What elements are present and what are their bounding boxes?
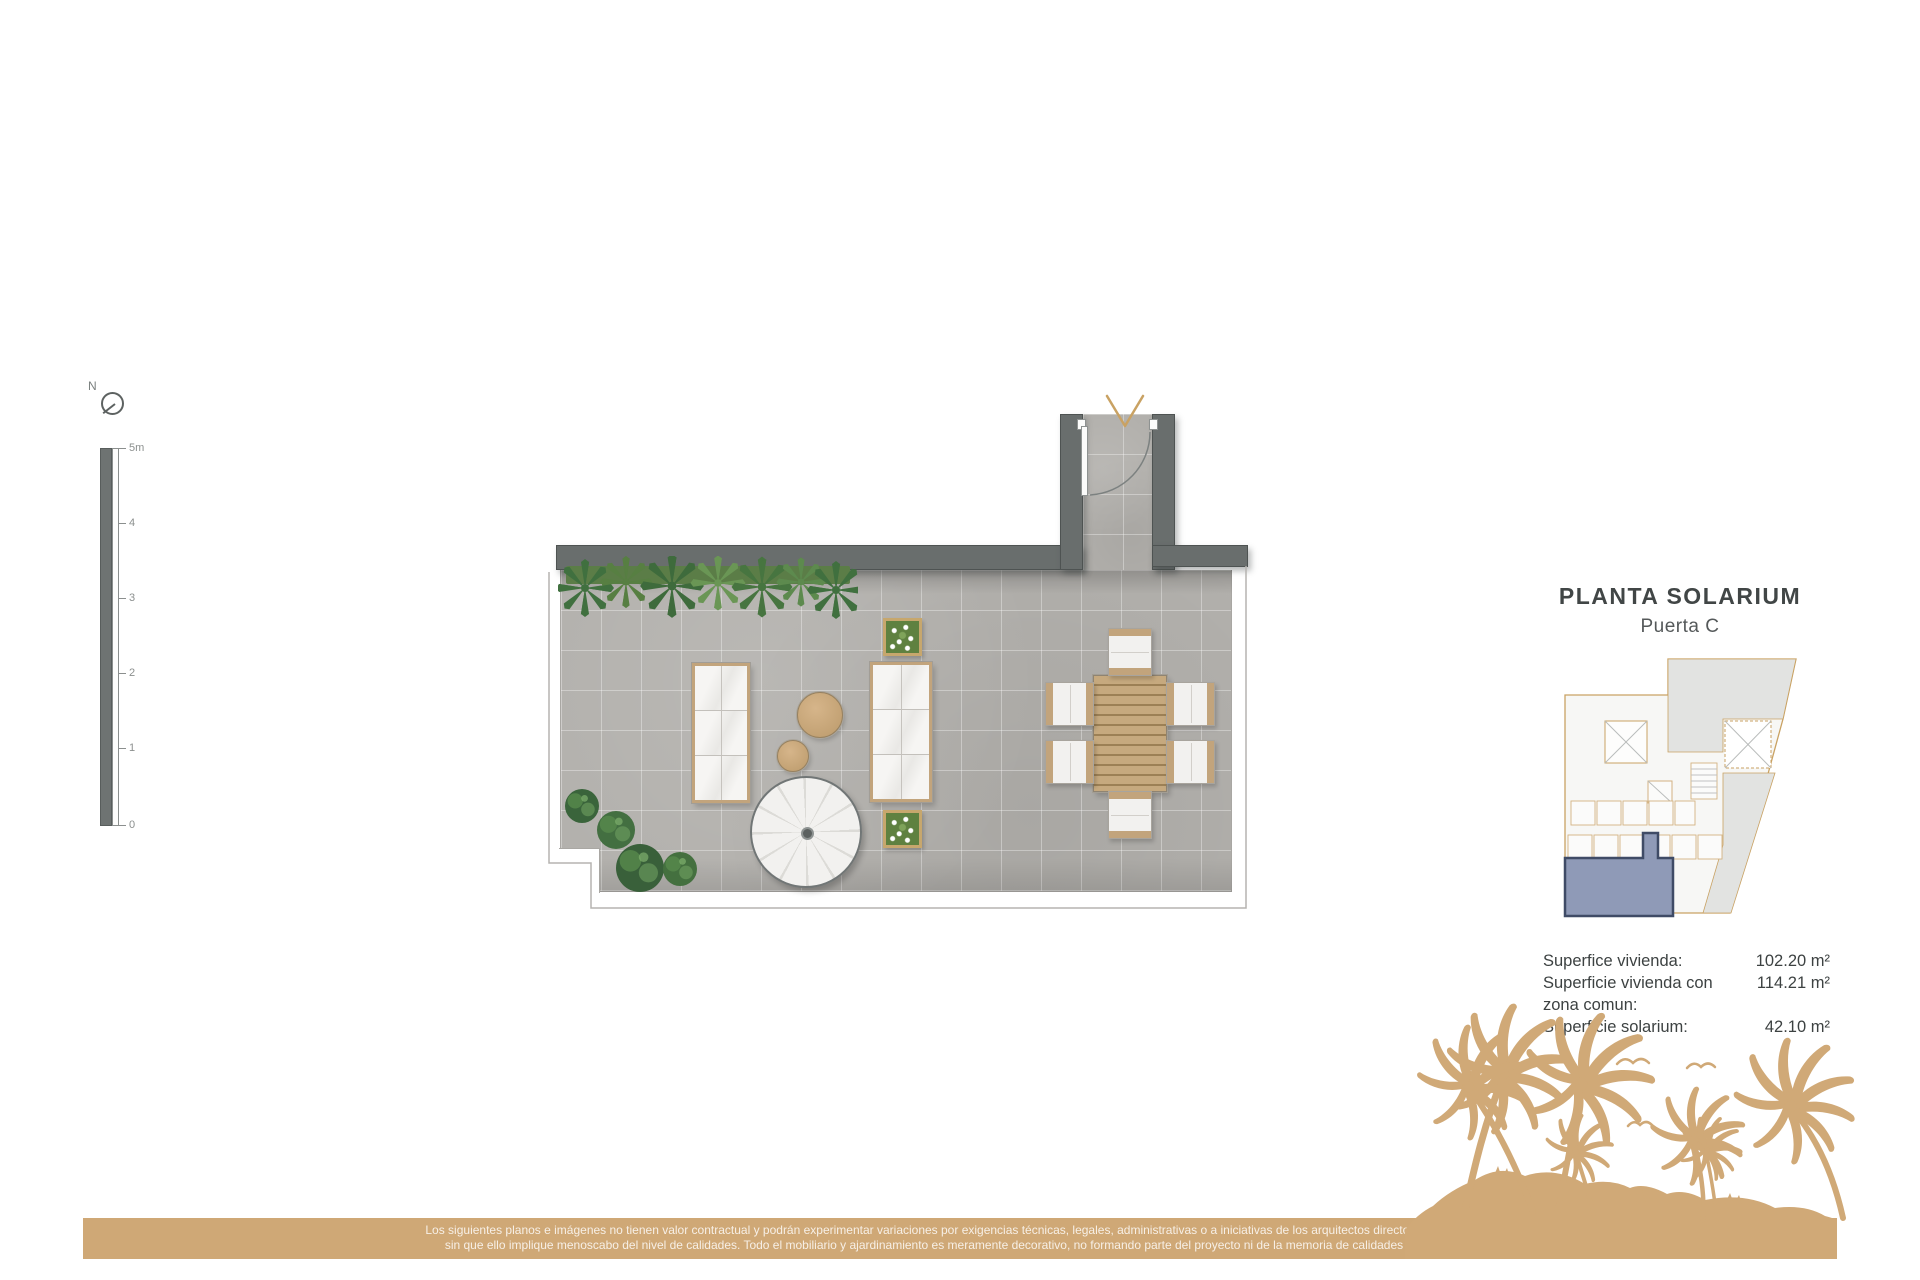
scale-tick	[119, 825, 126, 826]
key-plan	[1563, 655, 1835, 921]
scale-tick	[119, 448, 126, 449]
planter-box	[883, 810, 922, 848]
area-label: Superfice vivienda:	[1543, 950, 1682, 972]
scale-bar-dark	[100, 448, 112, 826]
scale-label: 2	[129, 667, 135, 679]
sun-lounger-double	[692, 663, 750, 803]
scale-label: 0	[129, 819, 135, 831]
area-value: 114.21 m²	[1757, 972, 1830, 994]
area-row: Superfice vivienda: 102.20 m²	[1543, 950, 1830, 972]
round-side-table-small	[777, 740, 809, 772]
lounger-cushion	[695, 756, 747, 800]
door-swing-arc	[1090, 432, 1150, 495]
scale-tick	[119, 748, 126, 749]
scale-label: 1	[129, 742, 135, 754]
parasol-icon	[750, 776, 862, 888]
dining-chair	[1045, 740, 1094, 784]
page-subtitle: Puerta C	[1530, 616, 1830, 638]
lounger-cushion	[695, 711, 747, 756]
planter-box	[883, 618, 922, 656]
scale-bar-light	[112, 448, 119, 826]
palm-beach-silhouette-icon	[1405, 992, 1920, 1259]
hedge-plants-icon	[558, 556, 858, 620]
area-label: Superficie vivienda con	[1543, 972, 1713, 994]
dining-chair	[1166, 682, 1215, 726]
compass-icon	[101, 392, 124, 415]
compass-north-label: N	[88, 379, 97, 393]
scale-tick	[119, 523, 126, 524]
lounger-cushion	[873, 710, 929, 755]
dining-chair	[1108, 791, 1152, 839]
scale-tick	[119, 673, 126, 674]
bushes-icon	[555, 775, 715, 900]
page-title: PLANTA SOLARIUM	[1530, 583, 1830, 610]
dining-table	[1093, 675, 1167, 792]
compass-needle	[103, 403, 116, 414]
lounger-cushion	[695, 666, 747, 711]
dining-chair	[1108, 628, 1152, 676]
lounger-cushion	[873, 665, 929, 710]
round-side-table-large	[797, 692, 843, 738]
scale-tick	[119, 598, 126, 599]
parasol-pole	[801, 827, 814, 840]
area-value: 102.20 m²	[1756, 950, 1830, 972]
sun-lounger-double	[870, 662, 932, 802]
area-row: Superficie vivienda con 114.21 m²	[1543, 972, 1830, 994]
lounger-cushion	[873, 755, 929, 799]
dining-chair	[1166, 740, 1215, 784]
scale-bar: 5m 4 3 2 1 0	[100, 448, 160, 826]
scale-label: 5m	[129, 442, 144, 454]
scale-label: 4	[129, 517, 135, 529]
dining-chair	[1045, 682, 1094, 726]
entrance-arrow-icon	[1107, 396, 1143, 426]
scale-label: 3	[129, 592, 135, 604]
brochure-page: N 5m 4 3 2 1 0	[0, 0, 1920, 1280]
